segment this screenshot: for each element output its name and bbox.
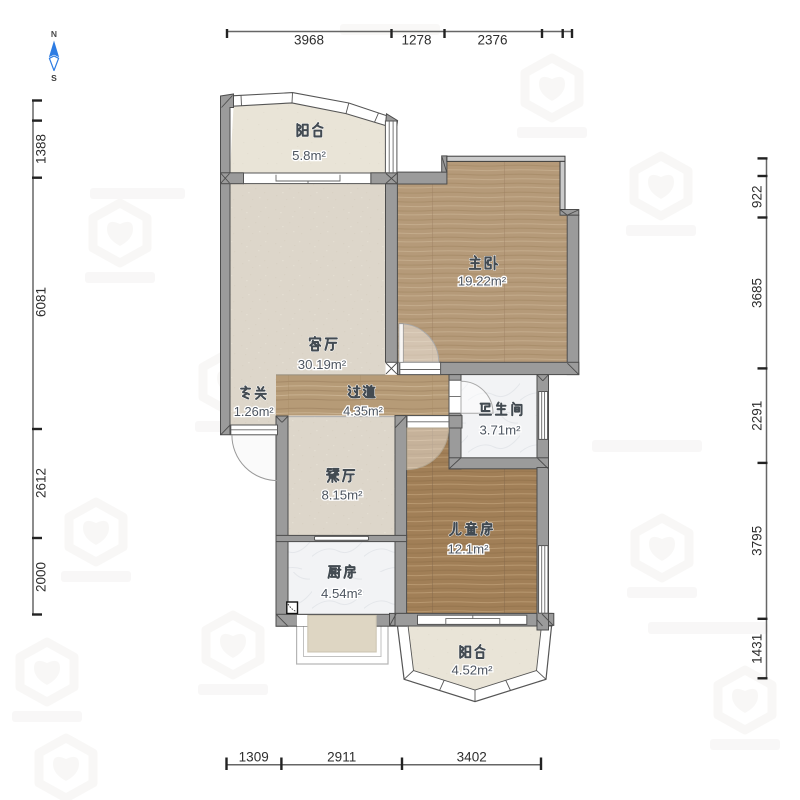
svg-text:4.52m²: 4.52m² — [451, 663, 493, 678]
svg-text:4.54m²: 4.54m² — [321, 586, 363, 601]
svg-text:2000: 2000 — [34, 562, 49, 592]
svg-text:3795: 3795 — [750, 526, 765, 556]
svg-text:1309: 1309 — [239, 750, 269, 765]
svg-text:3968: 3968 — [294, 33, 324, 48]
svg-text:8.15m²: 8.15m² — [321, 488, 363, 503]
svg-text:1.26m²: 1.26m² — [234, 404, 275, 419]
svg-text:2291: 2291 — [750, 401, 765, 431]
svg-text:922: 922 — [750, 186, 765, 209]
svg-text:S: S — [51, 73, 57, 83]
svg-text:4.35m²: 4.35m² — [343, 404, 384, 419]
svg-text:12.1m²: 12.1m² — [447, 542, 489, 557]
svg-text:6081: 6081 — [34, 287, 49, 317]
svg-text:30.19m²: 30.19m² — [298, 357, 347, 372]
svg-text:1278: 1278 — [401, 33, 431, 48]
svg-text:N: N — [51, 29, 57, 39]
svg-text:19.22m²: 19.22m² — [458, 274, 507, 289]
svg-text:2911: 2911 — [327, 750, 356, 765]
svg-text:3402: 3402 — [457, 750, 487, 765]
svg-text:2612: 2612 — [34, 468, 49, 498]
svg-text:1431: 1431 — [750, 634, 765, 664]
svg-text:3685: 3685 — [750, 278, 765, 308]
svg-text:5.8m²: 5.8m² — [292, 148, 326, 163]
svg-text:3.71m²: 3.71m² — [479, 423, 521, 438]
svg-text:2376: 2376 — [477, 33, 507, 48]
svg-text:1388: 1388 — [34, 134, 49, 164]
